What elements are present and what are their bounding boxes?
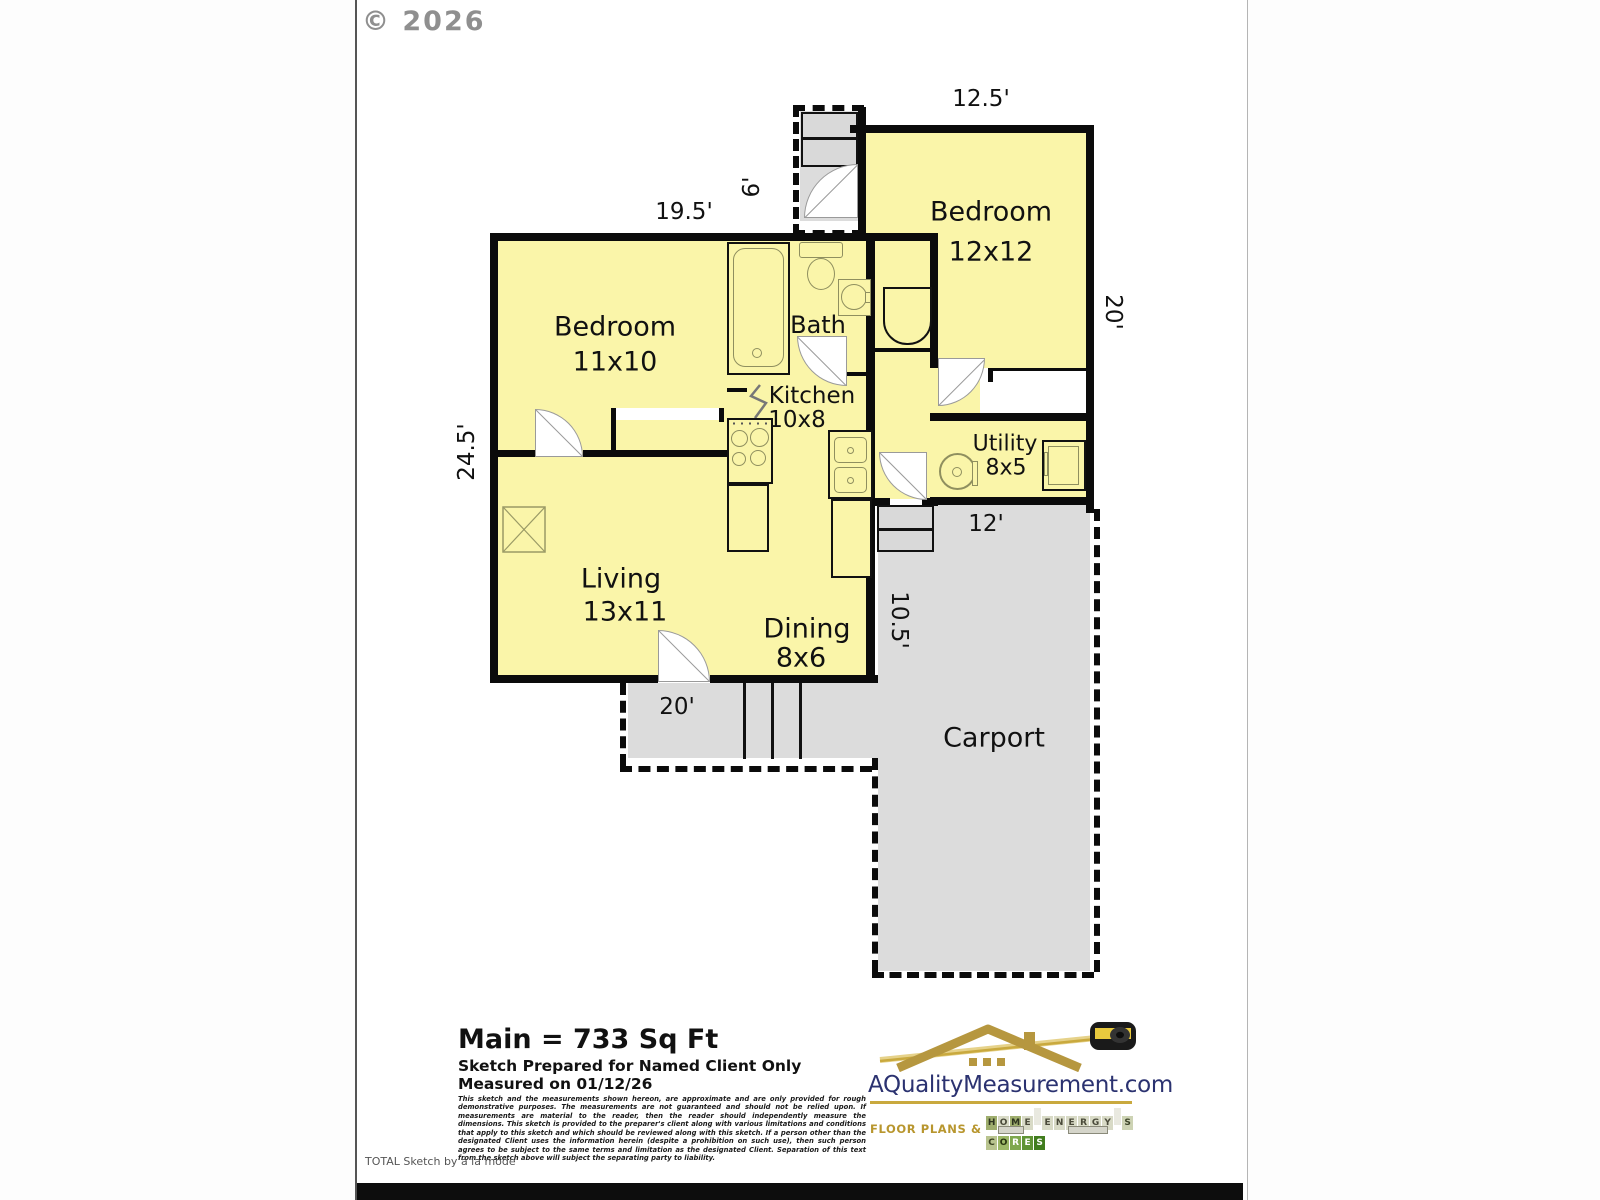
logo-tile-blank <box>1034 1108 1041 1125</box>
wall-break-zigzag <box>748 384 770 420</box>
toilet-bowl <box>807 258 835 290</box>
measured-on-line: Measured on 01/12/26 <box>458 1075 652 1093</box>
room-size-dining: 8x6 <box>776 643 826 674</box>
area-summary: Main = 733 Sq Ft <box>458 1024 718 1055</box>
bath-sink-basin <box>841 284 867 310</box>
logo-tile-letter: R <box>1010 1136 1021 1150</box>
prepared-for-line: Sketch Prepared for Named Client Only <box>458 1057 801 1075</box>
logo-tagline-text: Floor Plans & <box>870 1122 982 1136</box>
wall-main-bottom-left <box>490 675 658 683</box>
logo-tile-letter: O <box>998 1136 1009 1150</box>
room-label-utility: Utility <box>973 432 1038 457</box>
closet-bedroom12-stub <box>988 368 993 382</box>
room-size-utility: 8x5 <box>985 456 1026 481</box>
stove-burner <box>732 452 746 466</box>
stove <box>727 418 773 484</box>
washer-door <box>952 467 962 477</box>
bath-sink-tap <box>865 292 871 303</box>
front-porch-dashed-bottom <box>620 758 872 772</box>
logo-tile-letter: E <box>1022 1136 1033 1150</box>
room-size-bedroom11: 11x10 <box>573 347 658 378</box>
logo-mini-badge <box>998 1126 1024 1134</box>
wall-utility-bottom <box>930 497 1094 505</box>
room-label-living: Living <box>581 564 661 595</box>
wall-bedroom11-bottom-left <box>495 450 535 457</box>
carport-step <box>877 529 934 552</box>
closet-bifold-bedroom11 <box>616 408 719 420</box>
logo-tile-letter: H <box>986 1116 997 1130</box>
room-size-living: 13x11 <box>583 597 668 628</box>
utility-appliance-inner <box>1048 446 1079 485</box>
toilet-tank <box>799 242 843 258</box>
copyright-text: © 2026 <box>362 6 486 37</box>
bathtub-drain <box>752 348 762 358</box>
kitchen-counter-lower <box>831 499 872 578</box>
room-size-kitchen: 10x8 <box>768 407 826 433</box>
floorplan-canvas: © 2026 <box>0 0 1600 1200</box>
front-porch-dashed-left <box>620 683 634 766</box>
stove-burner <box>750 450 766 466</box>
room-label-bedroom11: Bedroom <box>554 312 676 343</box>
room-label-bedroom12: Bedroom <box>930 197 1052 228</box>
carport-dashed-left <box>872 758 886 972</box>
wall-back-porch-right <box>858 107 866 240</box>
dim-main-width: 19.5' <box>655 199 713 225</box>
logo-wordmark: AQualityMeasurement.com <box>868 1072 1136 1098</box>
logo-roof-tape-graphic <box>868 1012 1136 1072</box>
closet-bedroom12-front <box>993 368 1086 371</box>
utility-appliance-handle <box>1044 452 1048 476</box>
room-label-kitchen: Kitchen <box>769 383 855 409</box>
porch-step-line <box>743 683 746 759</box>
stove-burner <box>731 430 748 447</box>
stove-knobs <box>730 421 770 426</box>
closet-bifold-stub <box>719 408 724 422</box>
main-floor-area <box>498 240 872 676</box>
dim-bedroom12-width: 12.5' <box>952 86 1010 112</box>
closet-bedroom12-interior <box>980 368 1086 413</box>
room-label-dining: Dining <box>763 614 850 645</box>
wall-bedroom12-top <box>850 125 1094 133</box>
wall-bedroom11-bottom-right <box>583 450 743 457</box>
logo-tile-letter: S <box>1122 1116 1133 1130</box>
dim-front-porch: 20' <box>659 694 695 720</box>
page-bottom-bar <box>357 1183 1243 1200</box>
room-label-carport: Carport <box>943 723 1045 754</box>
logo-gold-rule <box>870 1101 1132 1104</box>
dim-utility-width: 12' <box>968 511 1004 537</box>
logo-tile-letter: C <box>986 1136 997 1150</box>
washer-panel <box>972 461 978 486</box>
wall-utility-top <box>930 413 1094 421</box>
footer-attribution: TOTAL Sketch by a la mode <box>365 1155 516 1168</box>
dim-back-porch: 6' <box>739 177 765 198</box>
dim-carport-upper: 10.5' <box>886 591 912 649</box>
wall-waterheater-closet-bottom <box>866 348 930 352</box>
dim-main-height: 24.5' <box>454 423 480 481</box>
disclaimer-text: This sketch and the measurements shown h… <box>458 1095 866 1163</box>
living-xbox <box>502 506 546 553</box>
wall-main-left <box>490 233 498 683</box>
room-label-bath: Bath <box>790 311 846 339</box>
logo-mini-badge <box>1068 1126 1108 1134</box>
wall-bath-bottom <box>727 388 747 392</box>
carport-step <box>877 505 934 530</box>
kitchen-sink-drain <box>847 447 854 454</box>
wall-main-bottom-right <box>710 675 878 683</box>
stove-burner <box>750 428 769 447</box>
porch-step-line <box>771 683 774 759</box>
carport-dashed-right <box>1086 509 1100 972</box>
dim-right-height: 20' <box>1100 294 1126 330</box>
kitchen-sink-drain <box>847 477 854 484</box>
wall-right-outer <box>1086 125 1094 513</box>
logo-tile-letter: N <box>1054 1116 1065 1130</box>
carport-dashed-bottom <box>872 964 1094 978</box>
kitchen-counter <box>727 484 769 552</box>
water-heater <box>883 287 932 345</box>
logo-tile-blank <box>1114 1108 1121 1125</box>
porch-step-line <box>799 683 802 759</box>
room-size-bedroom12: 12x12 <box>949 237 1034 268</box>
company-logo: AQualityMeasurement.com Floor Plans & HO… <box>868 1012 1136 1138</box>
wall-bath-door-side <box>847 372 866 376</box>
logo-tile-letter: S <box>1034 1136 1045 1150</box>
logo-tile-letter: E <box>1042 1116 1053 1130</box>
